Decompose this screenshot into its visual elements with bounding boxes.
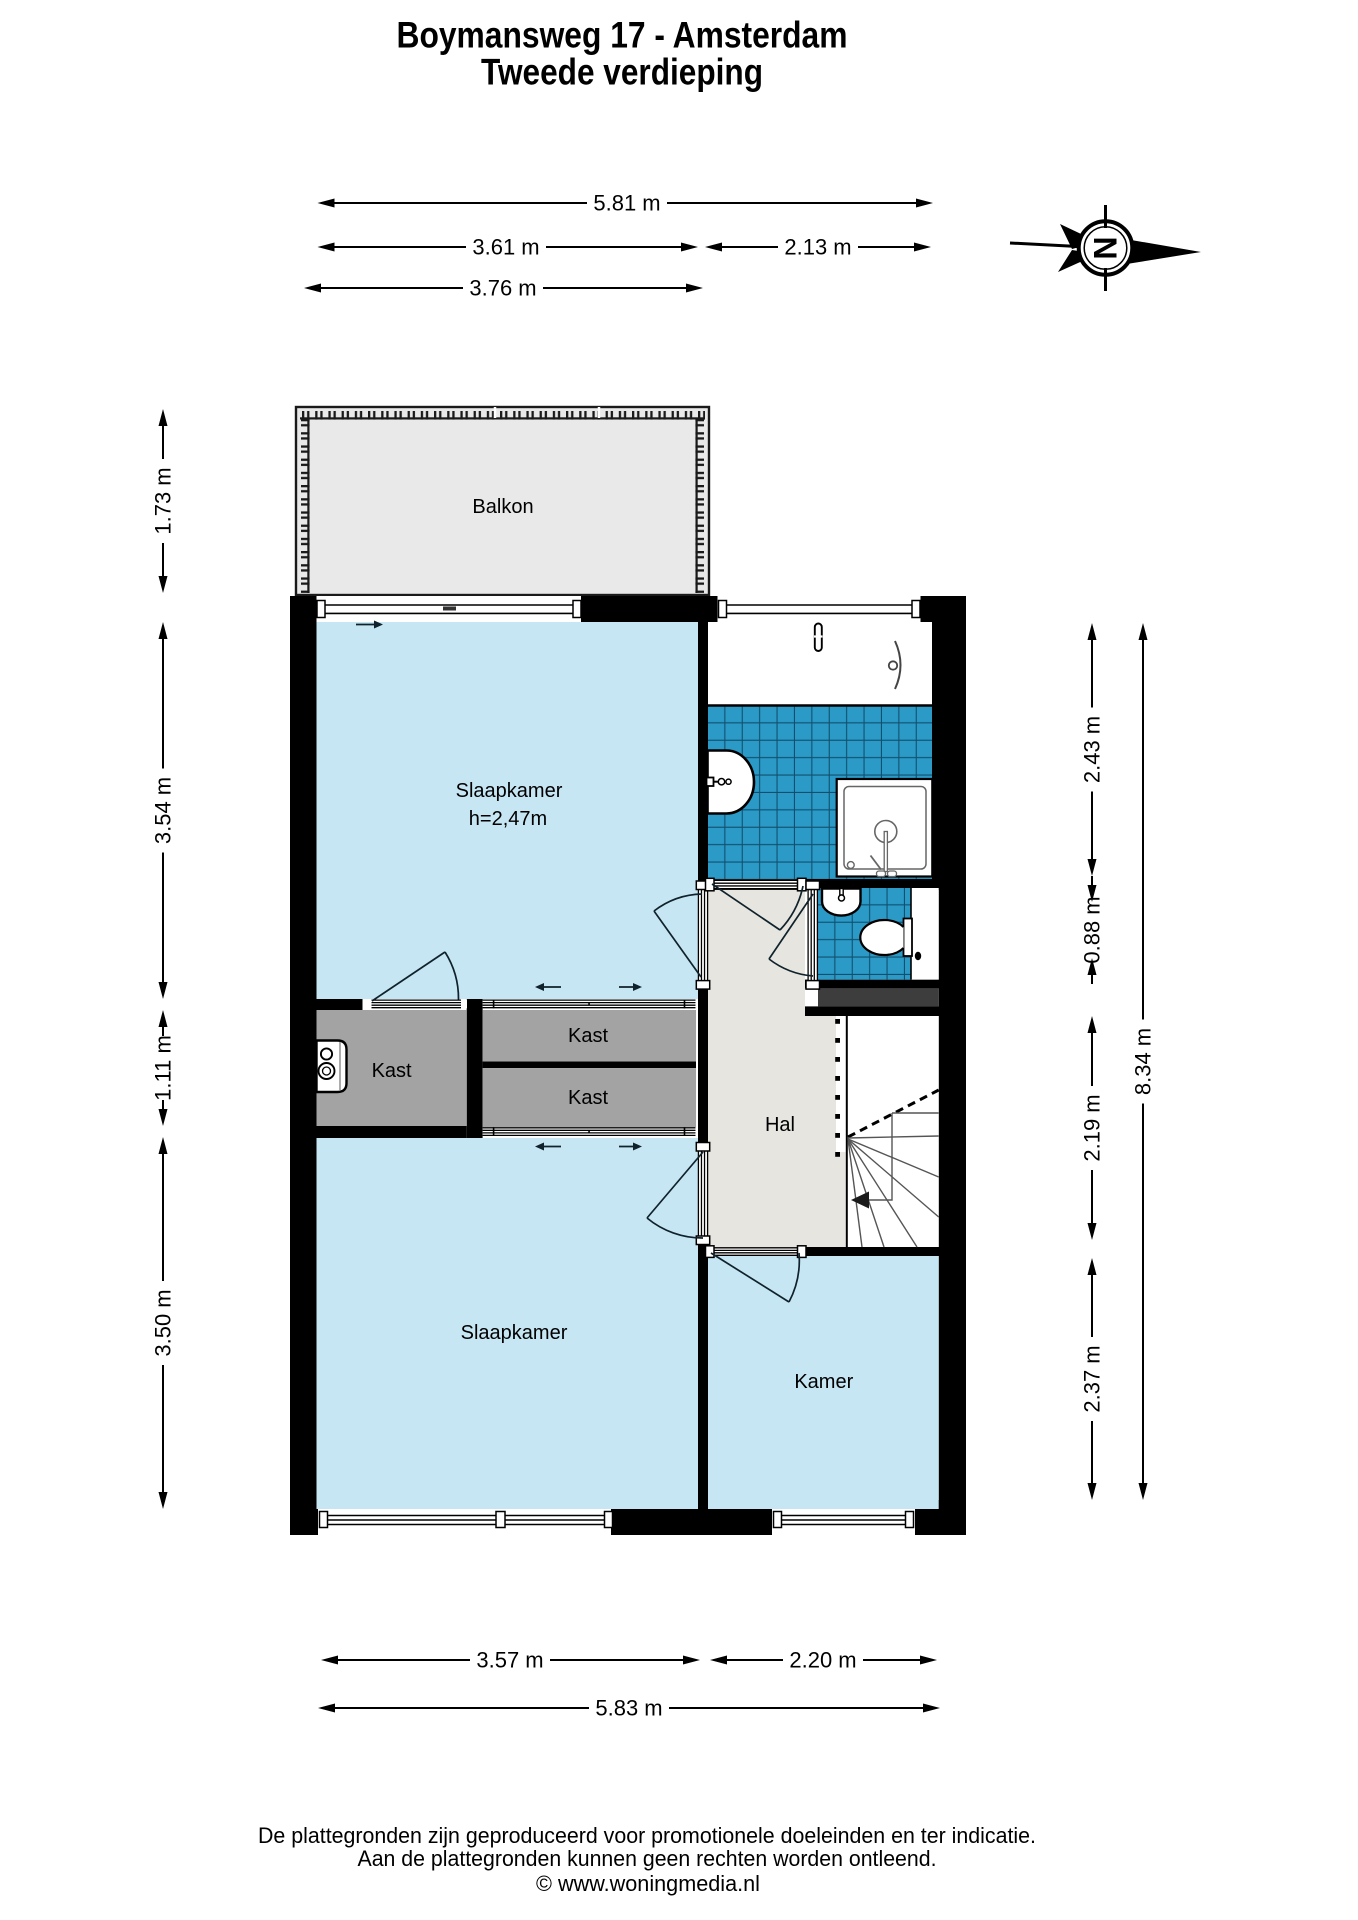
svg-text:2.19 m: 2.19 m — [1080, 1094, 1105, 1161]
svg-text:Kast: Kast — [568, 1025, 608, 1047]
svg-text:1.11 m: 1.11 m — [151, 1035, 176, 1101]
svg-text:Slaapkamer: Slaapkamer — [461, 1322, 568, 1344]
svg-text:Slaapkamer: Slaapkamer — [456, 780, 563, 802]
svg-text:1.73 m: 1.73 m — [151, 467, 176, 534]
svg-text:3.76 m: 3.76 m — [469, 276, 536, 301]
svg-text:Boymansweg 17 - Amsterdam: Boymansweg 17 - Amsterdam — [397, 15, 848, 56]
svg-text:2.13 m: 2.13 m — [784, 235, 851, 260]
svg-text:N: N — [1087, 236, 1123, 259]
svg-text:2.20 m: 2.20 m — [789, 1648, 856, 1673]
svg-text:Kast: Kast — [372, 1060, 412, 1082]
svg-text:Balkon: Balkon — [472, 496, 533, 518]
svg-text:5.83 m: 5.83 m — [595, 1696, 662, 1721]
svg-text:Aan de plattegronden kunnen ge: Aan de plattegronden kunnen geen rechten… — [358, 1846, 937, 1871]
svg-text:5.81 m: 5.81 m — [593, 191, 660, 216]
svg-text:Hal: Hal — [765, 1114, 795, 1136]
svg-text:8.34 m: 8.34 m — [1131, 1028, 1156, 1095]
svg-text:3.50 m: 3.50 m — [151, 1289, 176, 1356]
svg-text:© www.woningmedia.nl: © www.woningmedia.nl — [536, 1871, 760, 1896]
svg-text:Kast: Kast — [568, 1087, 608, 1109]
svg-text:3.54 m: 3.54 m — [151, 777, 176, 844]
svg-text:0.88 m: 0.88 m — [1080, 896, 1105, 963]
svg-text:De plattegronden zijn geproduc: De plattegronden zijn geproduceerd voor … — [258, 1823, 1036, 1848]
svg-text:2.43 m: 2.43 m — [1080, 716, 1105, 783]
svg-text:Tweede verdieping: Tweede verdieping — [481, 52, 763, 93]
svg-text:3.57 m: 3.57 m — [476, 1648, 543, 1673]
svg-text:h=2,47m: h=2,47m — [469, 808, 547, 830]
svg-text:3.61 m: 3.61 m — [472, 235, 539, 260]
svg-text:2.37 m: 2.37 m — [1080, 1345, 1105, 1412]
svg-text:Kamer: Kamer — [794, 1371, 853, 1393]
